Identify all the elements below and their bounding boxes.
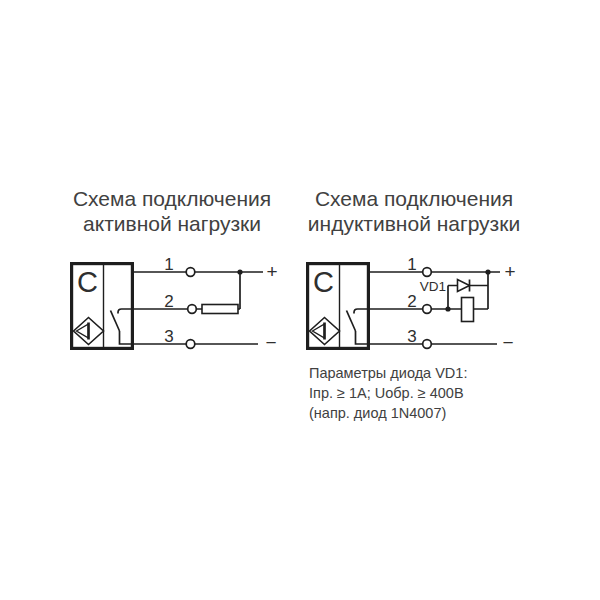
right-plus-label: + [504, 261, 515, 282]
right-diode-label: VD1 [420, 279, 446, 294]
left-plus-label: + [266, 261, 277, 282]
left-terminal-2-circle [188, 305, 197, 314]
left-junction-dot [237, 269, 242, 274]
right-terminal-1-circle [423, 268, 432, 277]
right-terminal-2-label: 2 [407, 292, 416, 311]
diode-note-line1: Параметры диода VD1: [309, 363, 467, 383]
right-diode-triangle-icon [458, 280, 470, 292]
right-terminal-1-label: 1 [407, 255, 416, 274]
right-junction-dot-top [485, 269, 490, 274]
left-terminal-3-circle [186, 340, 195, 349]
left-device-label: C [77, 266, 98, 298]
right-load-rect [462, 298, 474, 322]
diode-parameters-note: Параметры диода VD1: Iпр. ≥ 1А; Uобр. ≥ … [309, 363, 467, 423]
right-terminal-2-circle [423, 305, 432, 314]
right-device-label: C [313, 266, 334, 298]
left-wiring-diagram: C 1 2 3 + − [72, 255, 278, 354]
right-junction-dot-middle [445, 306, 450, 311]
wiring-diagrams: C 1 2 3 + − [0, 0, 600, 600]
left-terminal-1-circle [186, 268, 195, 277]
left-minus-label: − [265, 332, 276, 353]
diode-note-line3: (напр. диод 1N4007) [309, 403, 467, 423]
left-terminal-2-label: 2 [164, 292, 173, 311]
right-terminal-3-label: 3 [407, 327, 416, 346]
right-terminal-3-circle [423, 340, 432, 349]
right-minus-label: − [502, 332, 513, 353]
right-wiring-diagram: C 1 2 3 VD1 + − [308, 255, 516, 354]
left-load-resistor [202, 305, 238, 314]
diode-note-line2: Iпр. ≥ 1А; Uобр. ≥ 400В [309, 383, 467, 403]
page: Схема подключения активной нагрузки Схем… [0, 0, 600, 600]
left-terminal-3-label: 3 [164, 327, 173, 346]
left-terminal-1-label: 1 [164, 255, 173, 274]
